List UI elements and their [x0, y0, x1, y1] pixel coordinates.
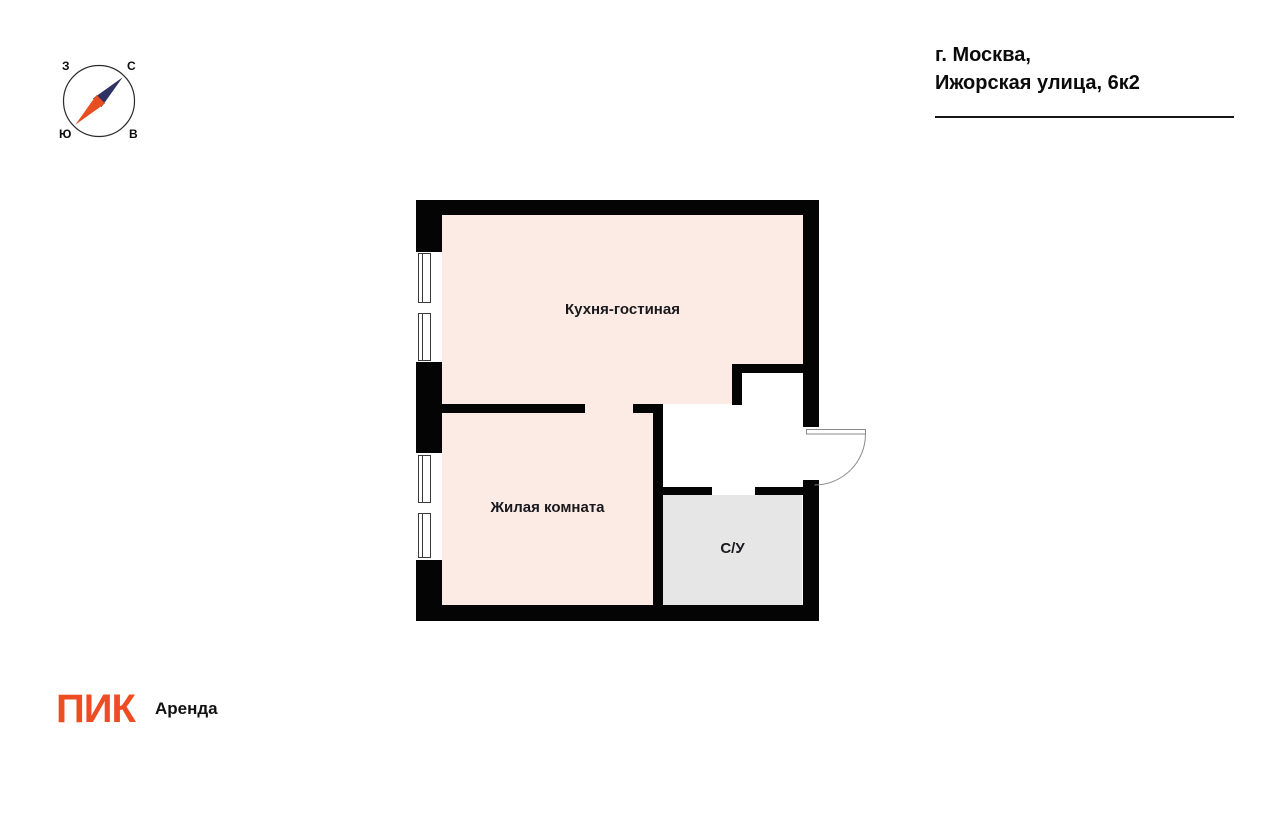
compass-needle-icon: [62, 64, 136, 138]
room-kitchen-living: [442, 215, 803, 364]
window-sash: [418, 302, 431, 314]
compass-label-north: С: [127, 60, 136, 72]
wall-entry-notch-horizontal: [742, 364, 803, 373]
wall-hallway-vertical: [653, 404, 663, 605]
room-door-opening: [585, 404, 633, 413]
wall-bottom: [416, 605, 819, 621]
wall-right-segment: [803, 480, 819, 621]
logo-brand-text: ПИК: [56, 688, 135, 730]
wall-bathroom-segment: [755, 487, 803, 495]
wall-left-segment: [416, 560, 442, 621]
address-city: г. Москва,: [935, 41, 1234, 69]
room-kitchen-living: [442, 364, 732, 404]
entry-door-arc-icon: [800, 420, 880, 492]
window-icon: [418, 455, 431, 558]
address-block: г. Москва, Ижорская улица, 6к2: [935, 41, 1234, 118]
room-label-kitchen-living: Кухня-гостиная: [442, 301, 803, 319]
address-street: Ижорская улица, 6к2: [935, 69, 1234, 97]
wall-entry-notch-vertical: [732, 364, 742, 405]
wall-left-segment: [416, 200, 442, 252]
address-divider: [935, 116, 1234, 118]
wall-top: [416, 200, 819, 215]
compass-rose: З С Ю В: [55, 55, 145, 147]
logo-product-text: Аренда: [155, 699, 218, 719]
room-label-living: Жилая комната: [442, 499, 653, 517]
window-sash: [418, 502, 431, 514]
wall-right-segment: [803, 200, 819, 427]
window-icon: [418, 253, 431, 361]
floor-plan: Кухня-гостиная Жилая комната С/У: [416, 200, 819, 621]
room-label-bathroom: С/У: [663, 540, 802, 558]
wall-left-segment: [416, 362, 442, 453]
wall-bathroom-segment: [653, 487, 712, 495]
compass-label-west: З: [62, 60, 70, 72]
wall-kitchen-living: [442, 404, 585, 413]
compass-label-south: Ю: [59, 128, 71, 140]
compass-label-east: В: [129, 128, 138, 140]
